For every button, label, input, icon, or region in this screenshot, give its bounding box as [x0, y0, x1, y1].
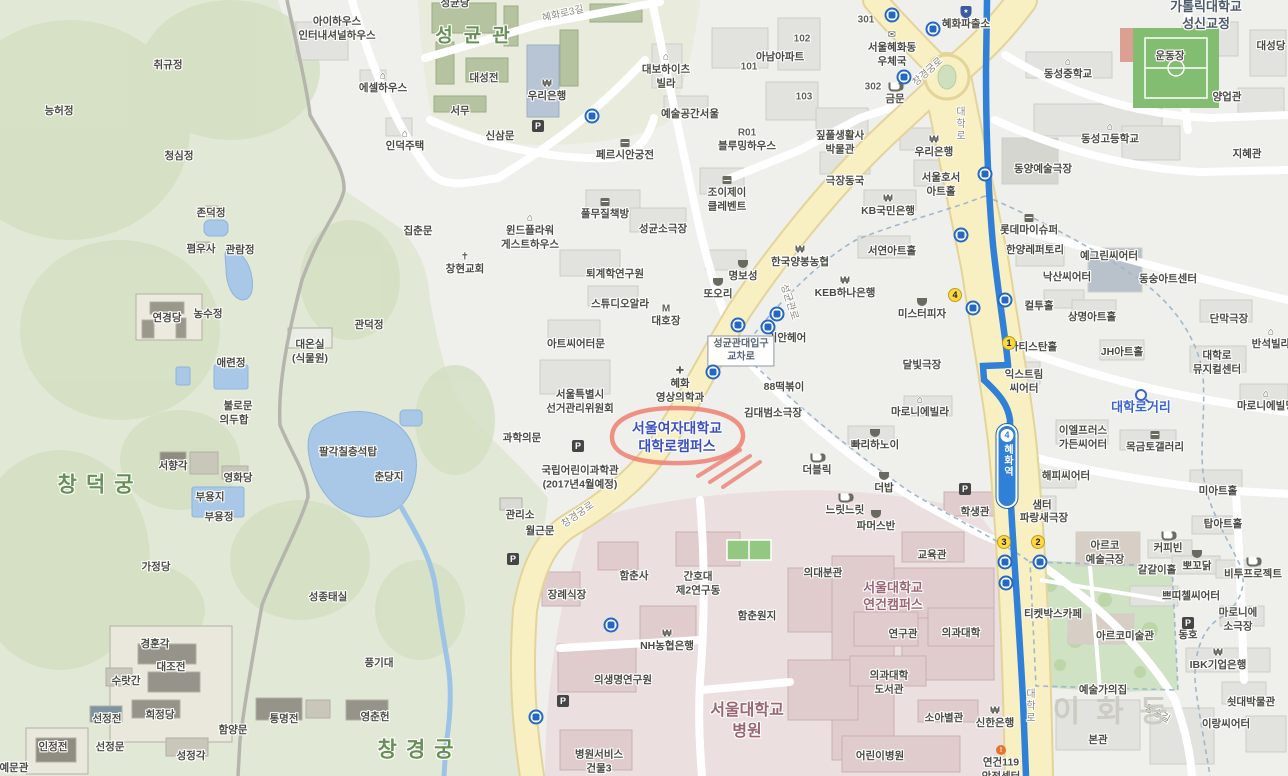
building-number: 103: [796, 91, 813, 104]
map-label[interactable]: 예문관: [0, 762, 28, 776]
map-label[interactable]: 동성중학교: [1044, 68, 1092, 82]
map-label[interactable]: 해피씨어터: [1042, 470, 1090, 484]
map-label[interactable]: 동호: [1178, 629, 1197, 643]
building-number: 302: [865, 81, 882, 94]
map-label[interactable]: 달빛극장: [903, 359, 942, 373]
map-label[interactable]: 관람정: [226, 244, 255, 258]
map-label[interactable]: 동양예술극장: [1014, 163, 1072, 177]
map-label[interactable]: 함양문: [219, 724, 248, 738]
map-label[interactable]: 블루밍하우스: [718, 140, 776, 154]
map-label[interactable]: 수랏간: [112, 675, 141, 689]
map-label[interactable]: 파머스반: [857, 520, 896, 534]
map-label[interactable]: 샘터: [1032, 499, 1051, 513]
map-label[interactable]: 소아별관: [925, 712, 964, 726]
intersection-label-box: 성균관대입구교차로: [707, 336, 774, 367]
bowl-icon: [879, 472, 889, 480]
won-icon: ₩: [840, 275, 849, 286]
map-label[interactable]: 또오리: [704, 288, 733, 302]
map-label[interactable]: 아트씨어터문: [547, 338, 605, 352]
won-icon: ₩: [662, 628, 671, 639]
bowl-icon: [871, 510, 881, 518]
map-label[interactable]: 낙산씨어터: [1043, 271, 1091, 285]
subway-exit-3[interactable]: 3: [997, 535, 1011, 549]
bus-stop-icon[interactable]: [998, 555, 1013, 570]
map-label[interactable]: 아남아파트: [756, 51, 804, 65]
map-label[interactable]: 폄우사: [187, 243, 216, 257]
map-label[interactable]: 미스터피자: [898, 308, 946, 322]
map-label[interactable]: 대성전: [470, 72, 499, 86]
map-label[interactable]: 풍기대: [365, 657, 394, 671]
police-icon: ★: [961, 6, 972, 18]
road-label: 창경궁로: [559, 499, 597, 531]
map-label[interactable]: 커피빈: [1154, 542, 1183, 556]
map-label[interactable]: 마로니에빌라: [891, 406, 949, 420]
map-label[interactable]: 아르코미술관: [1096, 630, 1154, 644]
map-label[interactable]: 반석빌라: [1252, 338, 1288, 352]
area-label: 창덕궁: [58, 471, 143, 498]
map-label[interactable]: 컬투홀: [1025, 300, 1054, 314]
map-label[interactable]: 성정각: [177, 750, 206, 764]
map-label[interactable]: 상명아트홀: [1068, 311, 1116, 325]
bus-stop-icon[interactable]: [731, 318, 746, 333]
bus-stop-icon[interactable]: [885, 8, 900, 23]
map-label[interactable]: 교육관: [918, 549, 947, 563]
bus-stop-icon[interactable]: [999, 576, 1014, 591]
map-label[interactable]: 선정문: [96, 741, 125, 755]
bus-stop-icon[interactable]: [529, 710, 544, 725]
school-icon: ⌂: [1107, 121, 1113, 132]
map-label[interactable]: 장례식장: [548, 589, 587, 603]
map-label[interactable]: 미아트홀: [1199, 485, 1238, 499]
map-label[interactable]: 비투프로젝트: [1224, 568, 1282, 582]
map-label[interactable]: 능허정: [45, 105, 74, 119]
map-label[interactable]: 윈드플라워 게스트하우스: [501, 224, 559, 251]
cross-icon: ✚: [676, 366, 684, 377]
map-label[interactable]: 애련정: [217, 357, 246, 371]
map-label[interactable]: 관덕정: [355, 319, 384, 333]
cup-icon: [811, 453, 824, 462]
map-label[interactable]: 영춘헌: [361, 711, 390, 725]
map-label[interactable]: 대성당: [1257, 40, 1286, 54]
map-label[interactable]: 부용지: [196, 491, 225, 505]
map-label[interactable]: 느릿느릿: [826, 504, 865, 518]
map-label[interactable]: 취규정: [154, 59, 183, 73]
bus-stop-icon[interactable]: [978, 167, 993, 182]
bowl-icon: [870, 429, 880, 437]
district-label: 이화동: [1053, 693, 1184, 732]
map-label[interactable]: 연건119 안전센터: [982, 756, 1021, 776]
map-label[interactable]: 대학로 뮤지컬센터: [1193, 349, 1241, 376]
map-label[interactable]: IBK기업은행: [1190, 659, 1247, 673]
map-label[interactable]: 갈갈이홀: [1138, 564, 1177, 578]
map-label[interactable]: 김대범소극장: [744, 407, 802, 421]
parking-icon[interactable]: P: [532, 120, 544, 132]
map-label[interactable]: 목금토갤러리: [1126, 441, 1184, 455]
map-label[interactable]: 본관: [1088, 734, 1107, 748]
road-label: 대학로: [1023, 688, 1036, 724]
map-label[interactable]: 마로니에 소극장: [1219, 606, 1258, 633]
map-label[interactable]: 서연아트홀: [868, 245, 916, 259]
map-label[interactable]: 극장동국: [826, 175, 865, 189]
map-label[interactable]: 서울대학교 연건캠퍼스: [863, 580, 923, 614]
map-label[interactable]: KB국민은행: [861, 205, 915, 219]
building-number: 101: [741, 61, 758, 74]
shop-icon: [723, 176, 732, 184]
won-icon: ₩: [542, 78, 551, 89]
bus-stop-icon[interactable]: [761, 320, 776, 335]
bus-stop-icon[interactable]: [1033, 555, 1048, 570]
map-label[interactable]: 춘당지: [375, 471, 404, 485]
road-label: 혜화로3길: [541, 3, 585, 25]
map-label[interactable]: 티켓박스카페: [1024, 608, 1082, 622]
won-icon: ₩: [929, 134, 938, 145]
map-label[interactable]: 페르시안궁전: [596, 149, 654, 163]
map-label[interactable]: 더밥: [874, 482, 893, 496]
map-label[interactable]: 동숭아트센터: [1139, 273, 1197, 287]
map-label[interactable]: 대조전: [157, 661, 186, 675]
map-label[interactable]: 마로니에빌딩: [1237, 400, 1288, 414]
bowl-icon: [917, 298, 927, 306]
map-label[interactable]: 창현교회: [446, 263, 485, 277]
map-label[interactable]: 한양레퍼토리: [1006, 244, 1064, 258]
map-label[interactable]: 희정당: [146, 709, 175, 723]
map-label[interactable]: JH아트홀: [1101, 346, 1143, 360]
map-label[interactable]: 성종태실: [309, 591, 348, 605]
map-label[interactable]: 짚풀생활사 박물관: [816, 129, 864, 156]
cup-icon: [1162, 531, 1175, 540]
church-icon: ✝: [461, 251, 469, 262]
map-label[interactable]: 불로문: [224, 400, 253, 414]
map-label[interactable]: 집춘문: [404, 225, 433, 239]
map-label[interactable]: 월근문: [526, 525, 555, 539]
house-icon: ⌂: [1263, 388, 1269, 399]
house-icon: ⌂: [1268, 326, 1274, 337]
shop-icon: [601, 198, 610, 206]
mail-icon: ✉: [888, 30, 896, 41]
subway-exit-4[interactable]: 4: [948, 288, 962, 302]
road-label: 대학로: [953, 106, 966, 142]
subway-exit-2[interactable]: 2: [1031, 535, 1045, 549]
map-label[interactable]: 이엘프러스 가든씨어터: [1059, 424, 1107, 451]
map-label[interactable]: 88떡볶이: [764, 381, 805, 395]
map-label[interactable]: 농수정: [194, 308, 223, 322]
house-icon: ⌂: [380, 70, 386, 81]
map-label[interactable]: 단막극장: [1210, 313, 1249, 327]
map-label[interactable]: 아이하우스 인터내셔널하우스: [298, 15, 375, 42]
parking-icon[interactable]: P: [507, 553, 519, 565]
map-label[interactable]: 풀무질책방: [581, 208, 629, 222]
map-label[interactable]: 의두합: [220, 414, 249, 428]
subway-station-hyehwa[interactable]: 4 혜화역: [997, 424, 1018, 508]
map-label[interactable]: 이랑씨어터: [1202, 718, 1250, 732]
map-label[interactable]: 서울혜화동 우체국: [868, 41, 916, 68]
map-label[interactable]: 우리은행: [528, 90, 567, 104]
map-viewport[interactable]: 4 혜화역 성균관대입구교차로 취규정능허정청심정존덕정폄우사관람정연경당농수정…: [0, 0, 1288, 776]
house-icon: ⌂: [527, 213, 533, 224]
map-label[interactable]: 연경당: [153, 312, 182, 326]
subway-exit-1[interactable]: 1: [1002, 336, 1016, 350]
parking-icon[interactable]: P: [557, 695, 569, 707]
map-label[interactable]: 대학로거리: [1111, 400, 1171, 417]
fire-icon: !: [996, 745, 1006, 755]
map-label[interactable]: 경훈각: [141, 638, 170, 652]
bus-stop-icon[interactable]: [954, 228, 969, 243]
map-label[interactable]: 대보하이츠 빌라: [642, 63, 690, 90]
house-icon: ⌂: [663, 52, 669, 63]
map-label[interactable]: 탑아트홀: [1204, 518, 1243, 532]
map-label[interactable]: 의과대학 도서관: [870, 669, 909, 696]
map-label[interactable]: 팔각칠층석탑: [319, 446, 377, 460]
map-label[interactable]: 대호장: [652, 315, 681, 329]
map-label[interactable]: 신한은행: [976, 717, 1015, 731]
map-label[interactable]: 함춘사: [620, 570, 649, 584]
map-label[interactable]: 병원서비스 건물3: [575, 748, 623, 775]
won-icon: ₩: [795, 244, 804, 255]
map-label[interactable]: 국립어린이과학관 (2017년4월예정): [541, 464, 618, 491]
map-label[interactable]: 의대분관: [804, 567, 843, 581]
map-label[interactable]: 아르코 예술극장: [1086, 539, 1125, 566]
map-label[interactable]: 퇴계학연구원: [586, 268, 644, 282]
bus-stop-icon[interactable]: [604, 618, 619, 633]
map-label[interactable]: 혜화파출소: [942, 18, 990, 32]
map-label[interactable]: 금문: [885, 93, 904, 107]
line-4-badge: 4: [1001, 429, 1014, 442]
map-label[interactable]: 롯데마이슈퍼: [1000, 224, 1058, 238]
map-label[interactable]: 아티스탄홀: [1009, 341, 1057, 355]
shop-icon: [621, 139, 630, 147]
map-label[interactable]: 영화당: [224, 472, 253, 486]
won-icon: ₩: [1213, 647, 1222, 658]
map-label[interactable]: NH농협은행: [640, 640, 694, 654]
parking-icon[interactable]: P: [959, 483, 971, 495]
map-label[interactable]: 파랑새극장: [1020, 512, 1068, 526]
map-label[interactable]: 혜화 영상의학과: [656, 377, 704, 404]
map-label[interactable]: 조이제이 클레벤트: [708, 186, 747, 213]
map-label[interactable]: 서울호서 아트홀: [922, 171, 961, 198]
shop-icon: [1025, 214, 1034, 222]
parking-icon[interactable]: P: [572, 440, 584, 452]
house-icon: ⌂: [917, 394, 923, 405]
bowl-icon: [713, 278, 723, 286]
building-number: 301: [858, 14, 875, 27]
labels-layer: 4 혜화역 성균관대입구교차로 취규정능허정청심정존덕정폄우사관람정연경당농수정…: [0, 0, 1288, 776]
map-label[interactable]: 에셀하우스: [359, 82, 407, 96]
bus-stop-icon[interactable]: [966, 301, 981, 316]
magnifier-icon: [1135, 389, 1147, 401]
station-name: 혜화역: [1000, 444, 1015, 477]
motel-icon: M: [662, 303, 670, 314]
map-label[interactable]: 서울대학교 병원: [710, 701, 784, 743]
map-label[interactable]: 한국양봉농협: [771, 256, 829, 270]
map-label[interactable]: 성균당: [441, 0, 470, 11]
parking-icon[interactable]: P: [1182, 617, 1194, 629]
house-icon: ⌂: [402, 128, 408, 139]
map-label[interactable]: 지혜관: [1233, 148, 1262, 162]
building-number: R01: [738, 127, 756, 140]
bus-stop-icon[interactable]: [897, 70, 912, 85]
school-icon: ⌂: [1065, 56, 1071, 67]
bus-stop-icon[interactable]: [585, 109, 600, 124]
bus-stop-icon[interactable]: [926, 22, 941, 37]
map-label[interactable]: 통명전: [270, 713, 299, 727]
map-label[interactable]: 학생관: [961, 506, 990, 520]
area-label: 창경궁: [378, 736, 463, 763]
bus-stop-icon[interactable]: [706, 365, 721, 380]
map-label[interactable]: 동성고등학교: [1081, 133, 1139, 147]
map-label[interactable]: 스튜디오알라: [591, 298, 649, 312]
map-label[interactable]: 인정전: [39, 741, 68, 755]
map-label[interactable]: 성균소극장: [639, 223, 687, 237]
building-number: 102: [794, 33, 811, 46]
map-label[interactable]: 서향각: [159, 460, 188, 474]
map-label[interactable]: 청심정: [165, 150, 194, 164]
map-label[interactable]: KEB하나은행: [815, 287, 876, 301]
map-label[interactable]: 가정당: [142, 561, 171, 575]
map-label[interactable]: 운동장: [1156, 50, 1185, 64]
map-label[interactable]: 익스트림 씨어터: [1005, 368, 1044, 395]
map-label[interactable]: 서무: [450, 105, 469, 119]
map-label[interactable]: 간호대 제2연구동: [676, 570, 720, 597]
map-label[interactable]: 쇳대박물관: [1227, 696, 1275, 710]
map-label[interactable]: 더블릭: [803, 464, 832, 478]
map-label[interactable]: 예그린씨어터: [1080, 250, 1138, 264]
bowl-icon: [1192, 550, 1202, 558]
bus-stop-icon[interactable]: [770, 307, 785, 322]
won-icon: ₩: [883, 193, 892, 204]
map-label[interactable]: 우리은행: [915, 146, 954, 160]
cup-icon: [839, 493, 852, 502]
map-label[interactable]: 의생명연구원: [594, 674, 652, 688]
won-icon: ₩: [990, 705, 999, 716]
map-label[interactable]: 서울특별시 선거관리위원회: [546, 388, 614, 415]
map-label[interactable]: 연구관: [889, 628, 918, 642]
map-label[interactable]: 어린이병원: [856, 750, 904, 764]
map-label[interactable]: 양업관: [1213, 91, 1242, 105]
map-label[interactable]: 예술공간서울: [661, 108, 719, 122]
map-label[interactable]: 뽀꼬닭: [1183, 560, 1212, 574]
map-label[interactable]: 함춘원지: [738, 610, 777, 624]
map-label[interactable]: 쁘띠첼씨어터: [1162, 590, 1220, 604]
cup-icon: [1247, 557, 1260, 566]
bowl-icon: [738, 260, 748, 268]
map-label[interactable]: 부용정: [205, 511, 234, 525]
map-label[interactable]: 의과대학: [942, 627, 981, 641]
map-label[interactable]: 빠리하노이: [851, 439, 899, 453]
map-label[interactable]: 인덕주택: [386, 140, 425, 154]
map-label[interactable]: 과학의문: [503, 432, 542, 446]
map-label[interactable]: 가톨릭대학교 성신교정: [1170, 0, 1242, 33]
map-label[interactable]: 명보성: [729, 270, 758, 284]
area-label: 성균관: [435, 25, 520, 50]
map-label[interactable]: 존덕정: [197, 207, 226, 221]
map-label[interactable]: 신삼문: [486, 130, 515, 144]
map-label[interactable]: 대온실 (식물원): [292, 338, 328, 365]
bus-stop-icon[interactable]: [998, 293, 1013, 308]
annotated-campus-label[interactable]: 서울여자대학교 대학로캠퍼스: [632, 419, 722, 455]
map-label[interactable]: 선정전: [93, 713, 122, 727]
map-label[interactable]: 관리소: [506, 509, 535, 523]
shop-icon: [1151, 431, 1160, 439]
